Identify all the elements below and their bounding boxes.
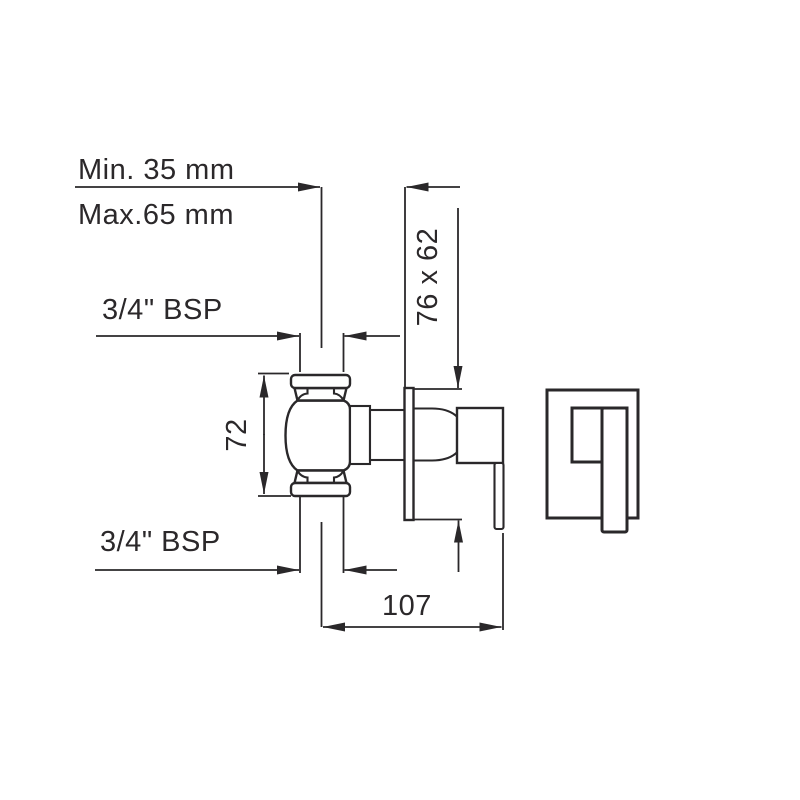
dimension-inlet-bottom: 3/4" BSP xyxy=(95,526,397,570)
dimension-body-height: 72 xyxy=(221,374,291,497)
technical-drawing-page: Min. 35 mm Max.65 mm 76 x 62 3/4" BSP 72… xyxy=(0,0,800,800)
valve-spindle xyxy=(370,410,406,460)
handle-front-view xyxy=(547,390,638,532)
handle-body-side xyxy=(457,408,503,463)
dimension-wall-depth: Min. 35 mm Max.65 mm xyxy=(75,154,460,388)
inlet-bottom-label: 3/4" BSP xyxy=(100,526,221,558)
inlet-top-label: 3/4" BSP xyxy=(102,294,223,326)
projection-label: 107 xyxy=(382,590,432,622)
body-height-label: 72 xyxy=(221,418,253,451)
bottom-flange xyxy=(291,483,350,496)
pipe-bottom xyxy=(300,497,344,627)
dimension-inlet-top: 3/4" BSP xyxy=(96,294,400,372)
outlet-neck xyxy=(350,406,370,464)
valve-dimension-drawing: Min. 35 mm Max.65 mm 76 x 62 3/4" BSP 72… xyxy=(0,0,800,800)
valve-body xyxy=(286,401,351,471)
max-depth-label: Max.65 mm xyxy=(78,199,234,231)
plate-size-label: 76 x 62 xyxy=(412,228,444,327)
handle-lever-side xyxy=(495,463,504,529)
min-depth-label: Min. 35 mm xyxy=(78,154,234,186)
top-flange xyxy=(291,375,350,388)
valve-side-view xyxy=(286,375,407,496)
dimension-projection: 107 xyxy=(323,533,503,630)
handle-lever-front xyxy=(602,408,627,532)
dimension-plate-size: 76 x 62 xyxy=(412,208,462,572)
handle-side-view xyxy=(457,408,504,529)
wall-plate-side xyxy=(405,388,414,520)
